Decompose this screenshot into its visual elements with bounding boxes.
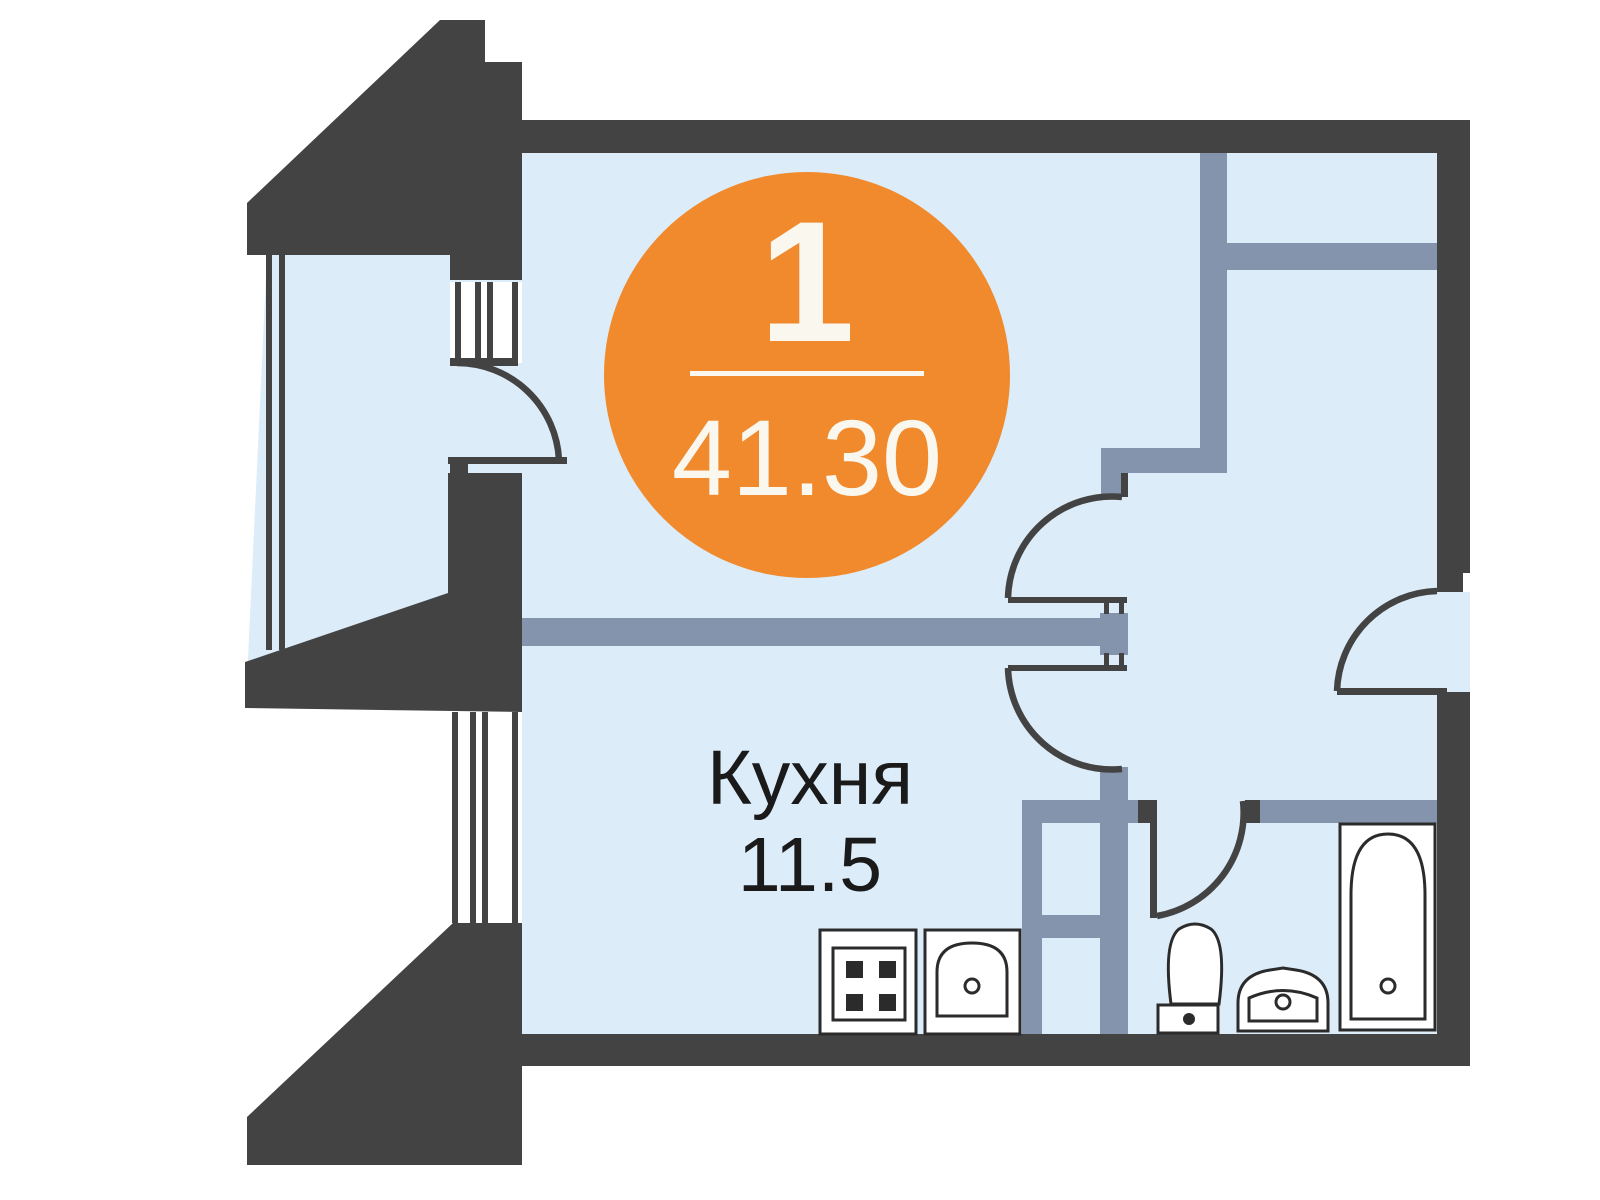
wall-bottom — [522, 1034, 1470, 1066]
apartment-badge: 1 41.30 — [604, 172, 1010, 578]
total-area-value: 41.30 — [604, 404, 1010, 512]
balcony-glazing-line — [279, 255, 285, 650]
door-leaf-living — [1008, 597, 1127, 603]
hall-partition-vertical — [1200, 153, 1227, 473]
badge-divider — [690, 371, 924, 376]
room-name: Кухня — [600, 735, 1020, 822]
bathtub-icon — [1340, 824, 1435, 1030]
closet-partition — [1227, 243, 1437, 270]
door-leaf-bathroom — [1150, 800, 1157, 918]
kitchen-divider-wall — [522, 618, 1100, 646]
stove-icon — [820, 930, 916, 1034]
door-leaf-balcony — [448, 457, 567, 464]
balcony-structure-top — [247, 20, 522, 280]
wall-top — [522, 120, 1470, 153]
washbasin-icon — [1238, 968, 1328, 1031]
door-leaf-kitchen — [1008, 665, 1127, 671]
wall-right-upper — [1437, 120, 1470, 573]
kitchen-sink-icon — [925, 930, 1020, 1034]
bathroom-partition — [1260, 800, 1437, 823]
floorplan-canvas: 1 41.30 Кухня 11.5 — [0, 0, 1600, 1200]
balcony-glazing-line — [266, 255, 272, 650]
balcony-structure-bottom — [247, 923, 522, 1165]
room-area: 11.5 — [600, 822, 1020, 909]
rooms-count: 1 — [604, 196, 1010, 368]
door-leaf-entrance — [1337, 688, 1447, 695]
wall-right-lower — [1437, 692, 1470, 1066]
room-label-kitchen: Кухня 11.5 — [600, 735, 1020, 909]
